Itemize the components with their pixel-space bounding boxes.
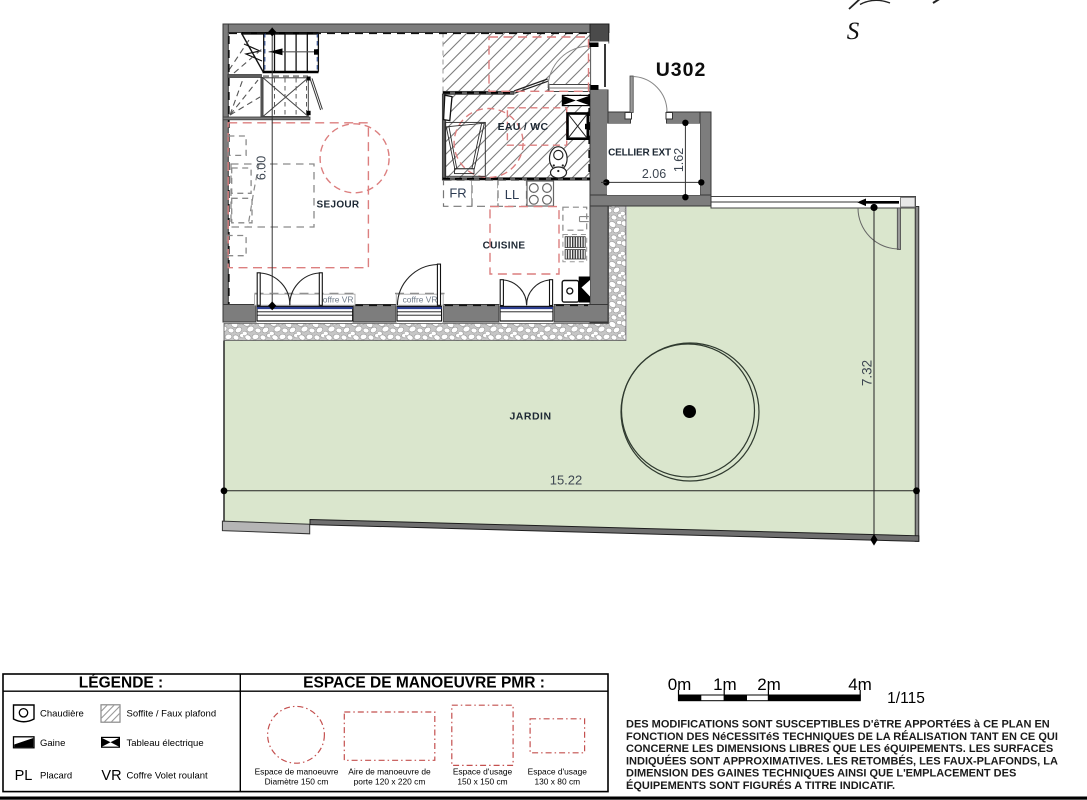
- svg-text:1.62: 1.62: [672, 148, 686, 172]
- svg-text:PL: PL: [15, 768, 33, 784]
- svg-text:VR: VR: [101, 768, 121, 784]
- svg-text:1/115: 1/115: [887, 690, 925, 707]
- svg-text:Chaudière: Chaudière: [40, 709, 84, 720]
- svg-text:EAU / WC: EAU / WC: [498, 121, 549, 133]
- svg-text:LÉGENDE :: LÉGENDE :: [79, 675, 163, 692]
- svg-text:Coffre Volet roulant: Coffre Volet roulant: [127, 771, 209, 782]
- svg-text:Placard: Placard: [40, 771, 72, 782]
- svg-text:INDIQUÉES SONT APPROXIMATIVES.: INDIQUÉES SONT APPROXIMATIVES. LES RETOM…: [626, 754, 1058, 767]
- svg-text:S: S: [847, 18, 860, 45]
- svg-text:DIMENSION DES GAINES TECHNIQUE: DIMENSION DES GAINES TECHNIQUES AINSI QU…: [626, 768, 1016, 780]
- svg-text:U302: U302: [656, 59, 707, 81]
- svg-text:DES MODIFICATIONS SONT SUSCEPT: DES MODIFICATIONS SONT SUSCEPTIBLES D'êT…: [626, 719, 1050, 731]
- svg-text:Soffite / Faux plafond: Soffite / Faux plafond: [127, 709, 217, 720]
- svg-text:porte 120 x 220 cm: porte 120 x 220 cm: [354, 777, 426, 787]
- svg-text:Espace d'usage: Espace d'usage: [453, 767, 513, 777]
- svg-text:coffre VR: coffre VR: [403, 295, 438, 305]
- svg-text:6.00: 6.00: [254, 156, 268, 180]
- svg-text:Espace d'usage: Espace d'usage: [528, 767, 588, 777]
- svg-text:JARDIN: JARDIN: [509, 411, 551, 423]
- svg-text:CONCERNE LES DIMENSIONS LIBRES: CONCERNE LES DIMENSIONS LIBRES QUE LES é…: [626, 743, 1053, 755]
- svg-text:coffre VR: coffre VR: [319, 295, 354, 305]
- svg-text:FONCTION DES NéCESSITéS TECHNI: FONCTION DES NéCESSITéS TECHNIQUES DE LA…: [626, 730, 1058, 743]
- svg-text:SEJOUR: SEJOUR: [317, 200, 360, 211]
- svg-text:7.32: 7.32: [860, 360, 875, 386]
- svg-text:Aire de manoeuvre de: Aire de manoeuvre de: [348, 767, 431, 777]
- svg-text:Tableau électrique: Tableau électrique: [127, 738, 204, 749]
- svg-text:2.06: 2.06: [642, 167, 666, 181]
- svg-text:CUISINE: CUISINE: [483, 241, 526, 252]
- svg-text:0m: 0m: [668, 675, 692, 694]
- svg-text:Gaine: Gaine: [40, 738, 65, 749]
- svg-text:Espace de manoeuvre: Espace de manoeuvre: [255, 767, 339, 777]
- svg-text:1m: 1m: [713, 675, 737, 694]
- svg-text:FR: FR: [449, 186, 466, 201]
- svg-text:15.22: 15.22: [550, 473, 583, 488]
- svg-text:ESPACE DE MANOEUVRE PMR :: ESPACE DE MANOEUVRE PMR :: [303, 675, 545, 692]
- svg-text:150 x 150 cm: 150 x 150 cm: [457, 777, 507, 787]
- svg-text:130 x 80 cm: 130 x 80 cm: [534, 777, 580, 787]
- svg-text:Diamètre 150 cm: Diamètre 150 cm: [265, 777, 329, 787]
- svg-text:ÉQUIPEMENTS SONT FIGURÉS A TIT: ÉQUIPEMENTS SONT FIGURÉS A TITRE INDICAT…: [626, 779, 895, 792]
- svg-text:LL: LL: [505, 187, 519, 202]
- svg-text:CELLIER EXT: CELLIER EXT: [608, 148, 671, 159]
